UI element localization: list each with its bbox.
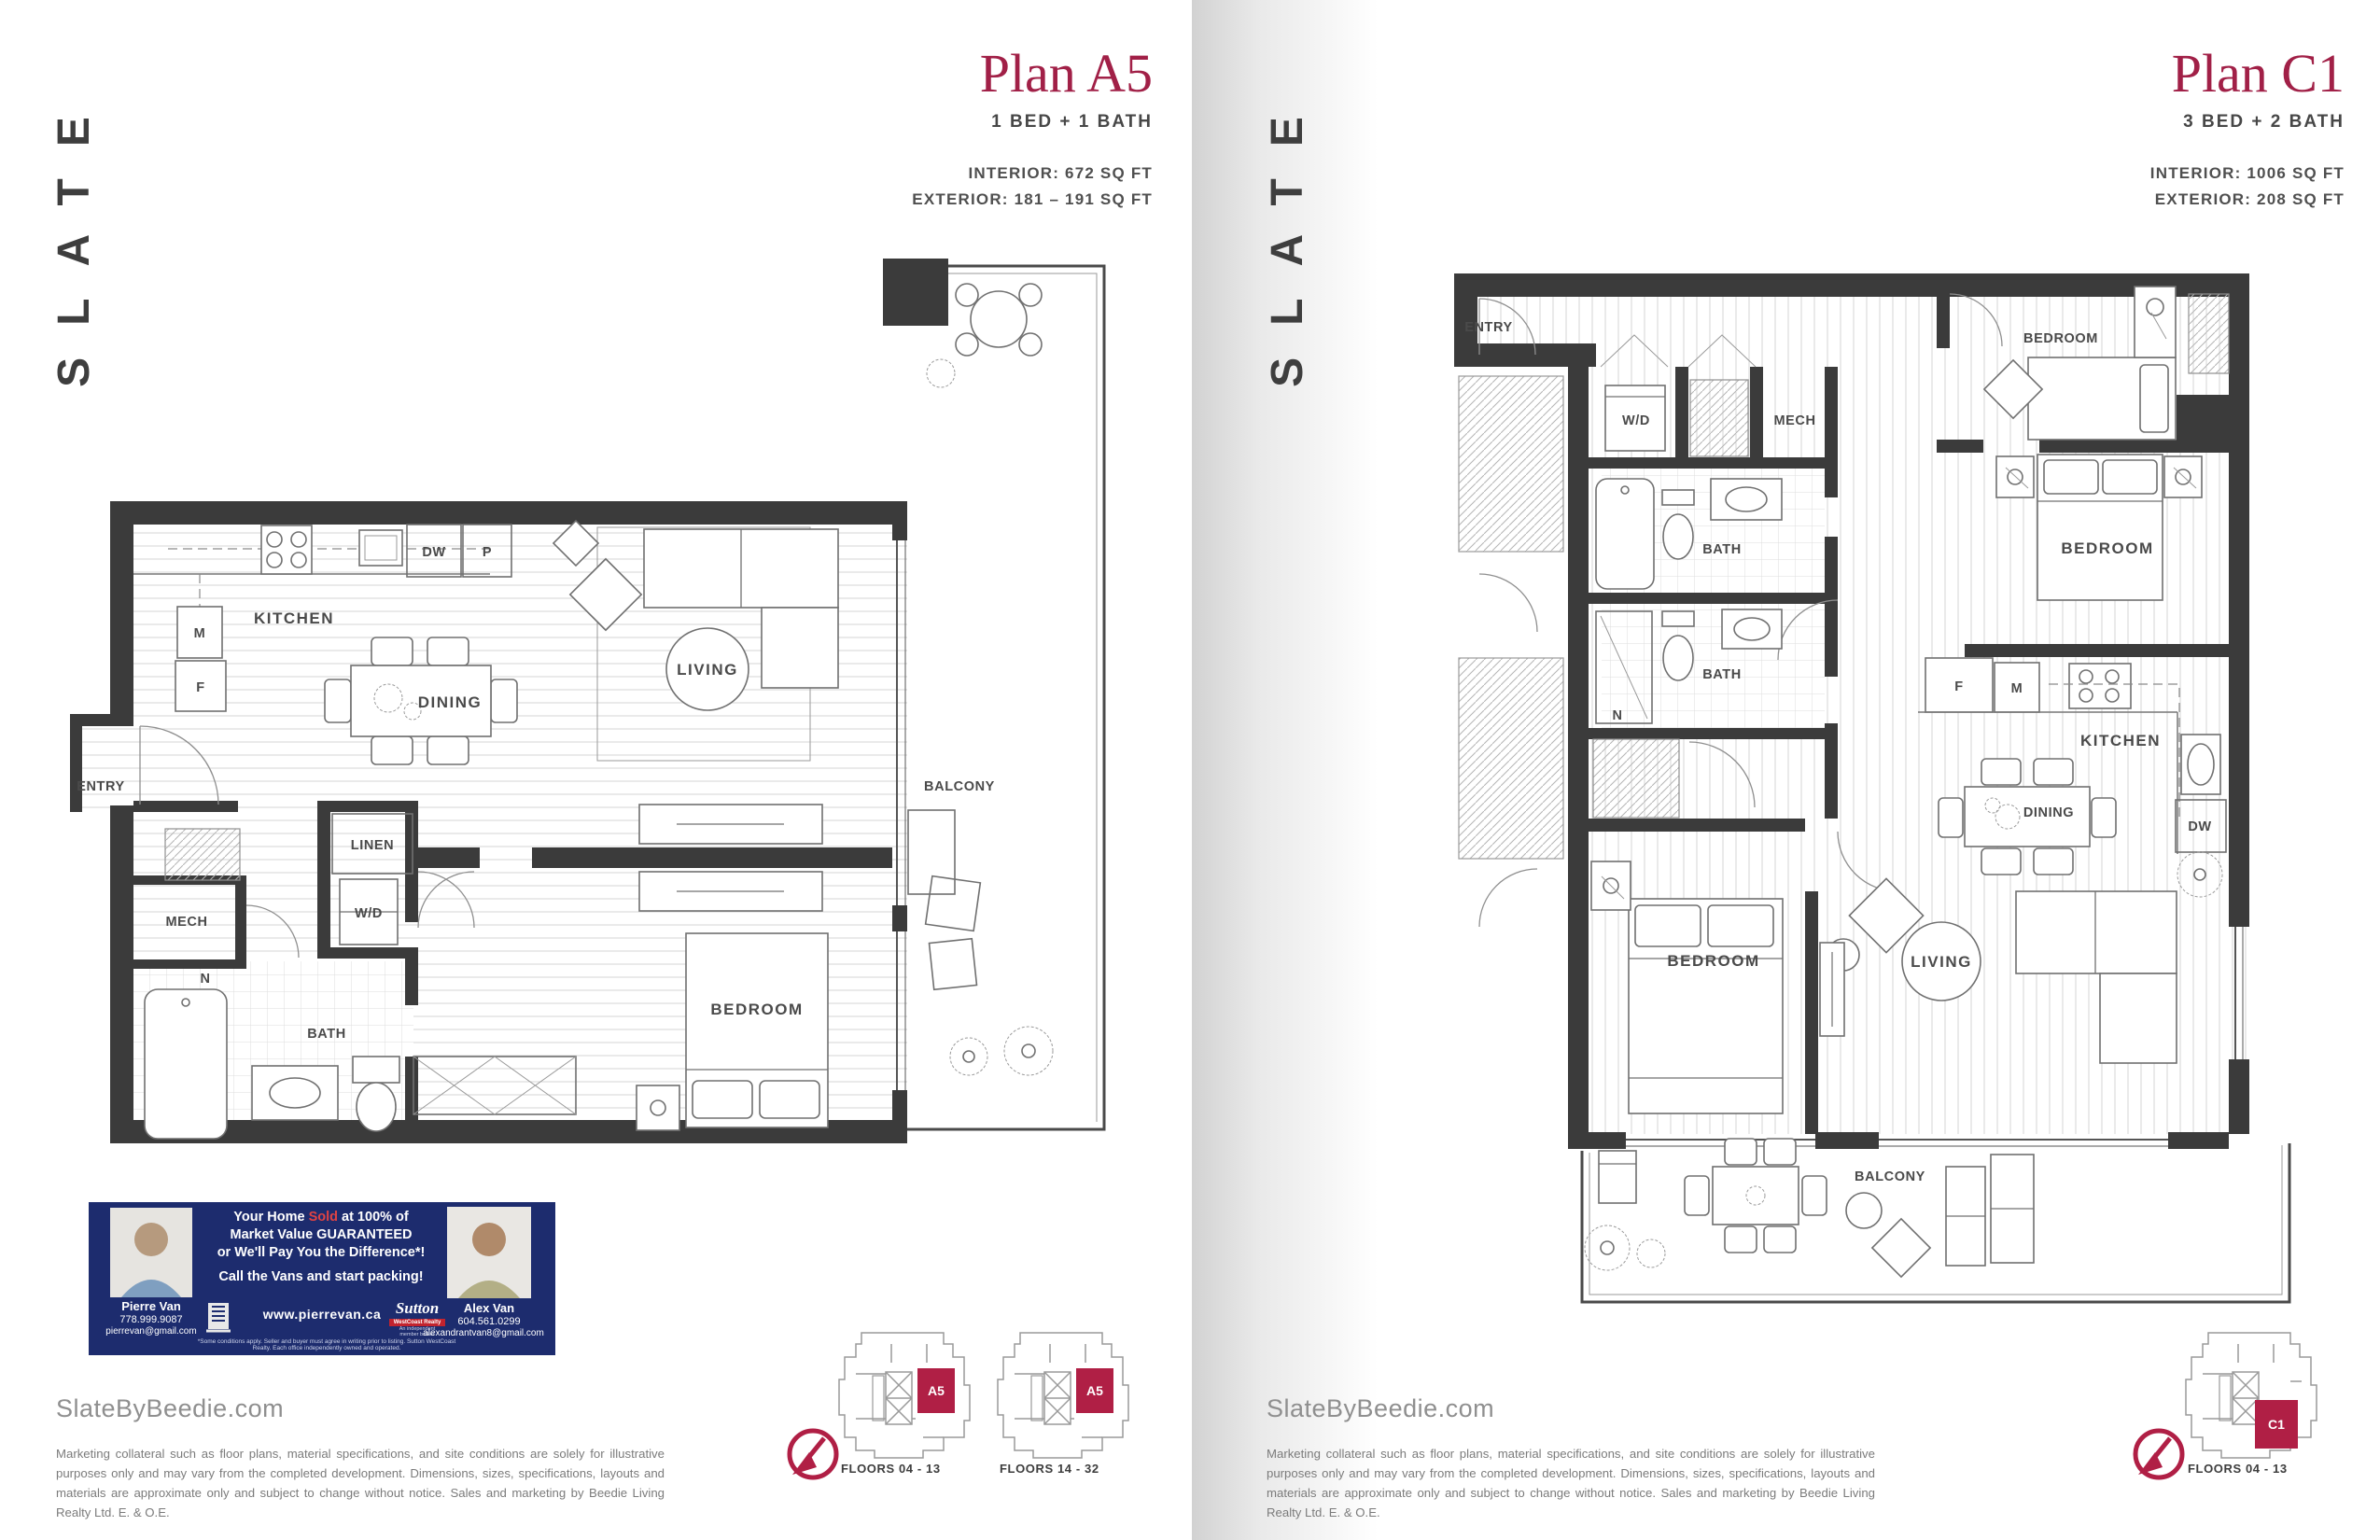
- slate-logo-right: SLATE: [1262, 35, 1313, 437]
- c1-label-bath1: BATH: [1702, 542, 1742, 557]
- ad-headline-pre: Your Home: [233, 1210, 308, 1225]
- a5-label-linen: LINEN: [351, 838, 395, 853]
- c1-label-bedroom1: BEDROOM: [2023, 331, 2098, 346]
- a5-label-entry: ENTRY: [77, 779, 125, 794]
- c1-label-bedroom3: BEDROOM: [1667, 952, 1759, 970]
- floorplan-c1: ENTRY W/D MECH BATH BATH N BEDROOM BEDRO…: [1442, 257, 2296, 1311]
- a5-label-mech: MECH: [165, 915, 207, 930]
- c1-label-microwave: M: [2011, 681, 2023, 696]
- a5-label-dw: DW: [422, 545, 445, 560]
- a5-label-nook: N: [200, 972, 210, 987]
- keyplate-a5-floors-label-2: FLOORS 14 - 32: [1000, 1462, 1158, 1476]
- keyplate-a5-unit-1: A5: [928, 1383, 945, 1398]
- c1-label-balcony: BALCONY: [1855, 1169, 1925, 1184]
- c1-label-mech: MECH: [1773, 413, 1815, 428]
- c1-label-fridge: F: [1954, 679, 1963, 694]
- agent-email-alex[interactable]: alexandrantvan8@gmail.com: [413, 1328, 553, 1338]
- a5-label-living: LIVING: [677, 661, 738, 679]
- c1-label-nook: N: [1612, 708, 1622, 723]
- c1-label-living: LIVING: [1911, 953, 1972, 971]
- plan-c1-interior-area: INTERIOR: 1006 SQ FT: [1867, 161, 2345, 187]
- plan-a5-config: 1 BED + 1 BATH: [681, 112, 1153, 133]
- website-right[interactable]: SlateByBeedie.com: [1267, 1394, 1494, 1423]
- agent-phone-pierre[interactable]: 778.999.9087: [100, 1314, 203, 1325]
- plan-c1-config: 3 BED + 2 BATH: [1867, 112, 2345, 133]
- plan-c1-title: Plan C1: [1867, 47, 2345, 101]
- ad-cta: Call the Vans and start packing!: [197, 1268, 445, 1286]
- ad-website-link[interactable]: www.pierrevan.ca: [257, 1307, 387, 1322]
- c1-balcony-railing: [1582, 1143, 2289, 1302]
- compass-icon-left: [784, 1425, 842, 1483]
- a5-label-kitchen: KITCHEN: [254, 609, 334, 627]
- keyplate-a5-floors-14-32: A5: [992, 1325, 1132, 1465]
- plan-a5-title: Plan A5: [681, 47, 1153, 101]
- a5-label-microwave: M: [194, 626, 206, 641]
- a5-label-pantry: P: [483, 545, 492, 560]
- keyplate-a5-floors-label-1: FLOORS 04 - 13: [841, 1462, 1000, 1476]
- plan-a5-header: Plan A5 1 BED + 1 BATH INTERIOR: 672 SQ …: [681, 47, 1153, 213]
- brochure-spread: SLATE Plan A5 1 BED + 1 BATH INTERIOR: 6…: [0, 0, 2380, 1540]
- c1-common-area: [1459, 376, 1563, 927]
- agent-photo-pierre: [110, 1208, 192, 1297]
- a5-label-bedroom: BEDROOM: [710, 1001, 803, 1018]
- a5-balcony-furniture: [908, 284, 1053, 1075]
- keyplate-c1-unit: C1: [2268, 1417, 2285, 1432]
- c1-balcony-railing-inner: [1589, 1145, 2282, 1295]
- ad-headline: Your Home Sold at 100% of Market Value G…: [197, 1209, 445, 1287]
- c1-label-bedroom2: BEDROOM: [2061, 539, 2153, 557]
- ad-headline-post: at 100% of: [338, 1210, 409, 1225]
- a5-label-balcony: BALCONY: [924, 779, 995, 794]
- ad-fine-print: *Some conditions apply. Seller and buyer…: [191, 1338, 462, 1351]
- sutton-logo-bar: WestCoast Realty: [389, 1319, 445, 1326]
- realtor-ad-banner[interactable]: Your Home Sold at 100% of Market Value G…: [89, 1202, 555, 1355]
- agent-photo-alex: [447, 1207, 531, 1298]
- c1-balcony-furniture: [1585, 1139, 2034, 1277]
- agent-email-pierre[interactable]: pierrevan@gmail.com: [81, 1326, 221, 1337]
- c1-label-bath2: BATH: [1702, 667, 1742, 682]
- keyplate-a5-unit-2: A5: [1086, 1383, 1103, 1398]
- ad-headline-sold: Sold: [309, 1210, 338, 1225]
- sutton-logo-name: Sutton: [389, 1299, 445, 1318]
- ad-headline-line2: Market Value GUARANTEED: [197, 1226, 445, 1244]
- a5-label-wd: W/D: [355, 906, 383, 921]
- plan-a5-interior-area: INTERIOR: 672 SQ FT: [681, 161, 1153, 187]
- disclaimer-right: Marketing collateral such as floor plans…: [1267, 1445, 1875, 1522]
- a5-label-dining: DINING: [418, 693, 483, 711]
- c1-label-kitchen: KITCHEN: [2080, 732, 2161, 749]
- plan-c1-header: Plan C1 3 BED + 2 BATH INTERIOR: 1006 SQ…: [1867, 47, 2345, 213]
- c1-label-dining: DINING: [2023, 805, 2074, 820]
- c1-label-dw: DW: [2188, 819, 2211, 834]
- a5-label-bath: BATH: [307, 1027, 346, 1042]
- plan-a5-exterior-area: EXTERIOR: 181 – 191 SQ FT: [681, 187, 1153, 213]
- agent-name-pierre: Pierre Van: [100, 1299, 203, 1313]
- website-left[interactable]: SlateByBeedie.com: [56, 1394, 284, 1423]
- keyplate-a5-floors-04-13: A5: [833, 1325, 973, 1465]
- agent-phone-alex[interactable]: 604.561.0299: [438, 1316, 540, 1327]
- ad-headline-line3: or We'll Pay You the Difference*!: [197, 1244, 445, 1262]
- c1-label-wd: W/D: [1622, 413, 1650, 428]
- agent-name-alex: Alex Van: [438, 1301, 540, 1315]
- a5-label-fridge: F: [196, 680, 204, 695]
- disclaimer-left: Marketing collateral such as floor plans…: [56, 1445, 665, 1522]
- keyplate-c1-floors-label: FLOORS 04 - 13: [2188, 1462, 2346, 1476]
- plan-c1-exterior-area: EXTERIOR: 208 SQ FT: [1867, 187, 2345, 213]
- compass-icon-right: [2130, 1425, 2188, 1483]
- a5-balcony-railing-inner: [894, 273, 1097, 1122]
- keyplate-c1-floors-04-13: C1: [2180, 1325, 2320, 1465]
- floorplan-a5: KITCHEN DINING LIVING BALCONY ENTRY MECH…: [65, 252, 1111, 1176]
- a5-balcony-railing: [887, 266, 1104, 1129]
- c1-label-entry: ENTRY: [1464, 320, 1513, 335]
